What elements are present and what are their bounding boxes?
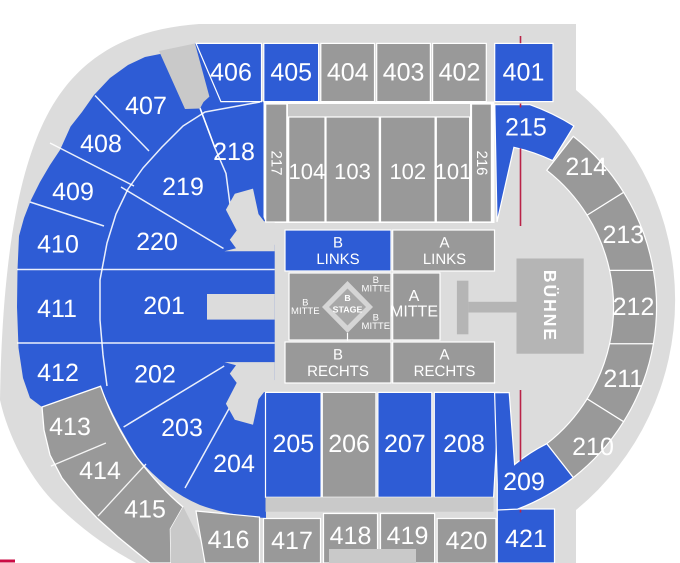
svg-text:205: 205 xyxy=(272,430,314,458)
svg-text:202: 202 xyxy=(134,361,176,389)
svg-text:208: 208 xyxy=(443,430,485,458)
svg-text:203: 203 xyxy=(161,414,203,442)
svg-text:B: B xyxy=(333,235,343,252)
svg-text:412: 412 xyxy=(37,359,79,387)
svg-text:215: 215 xyxy=(505,113,547,141)
svg-text:MITTE: MITTE xyxy=(362,283,391,294)
svg-text:408: 408 xyxy=(80,130,122,158)
svg-text:MITTE: MITTE xyxy=(291,306,320,317)
svg-text:218: 218 xyxy=(213,138,255,166)
svg-text:404: 404 xyxy=(327,59,369,87)
svg-text:421: 421 xyxy=(505,525,547,553)
svg-text:414: 414 xyxy=(79,457,121,485)
svg-text:420: 420 xyxy=(446,527,488,555)
svg-text:201: 201 xyxy=(143,292,185,320)
svg-text:211: 211 xyxy=(603,365,643,393)
svg-text:410: 410 xyxy=(37,231,79,259)
svg-text:415: 415 xyxy=(124,496,166,524)
svg-text:209: 209 xyxy=(503,468,545,496)
svg-text:MITTE: MITTE xyxy=(362,321,391,332)
svg-text:STAGE: STAGE xyxy=(333,304,363,314)
svg-text:B: B xyxy=(344,293,350,303)
svg-text:210: 210 xyxy=(572,433,614,461)
svg-text:216: 216 xyxy=(473,150,490,175)
svg-text:BÜHNE: BÜHNE xyxy=(540,270,560,342)
svg-text:406: 406 xyxy=(210,59,252,87)
svg-text:103: 103 xyxy=(334,159,371,184)
svg-text:LINKS: LINKS xyxy=(423,251,466,268)
svg-text:417: 417 xyxy=(271,527,313,555)
svg-text:407: 407 xyxy=(125,92,167,120)
svg-text:411: 411 xyxy=(37,295,77,323)
svg-text:MITTE: MITTE xyxy=(390,304,438,321)
svg-text:207: 207 xyxy=(384,430,426,458)
svg-text:401: 401 xyxy=(503,59,545,87)
svg-text:403: 403 xyxy=(383,59,425,87)
svg-text:402: 402 xyxy=(439,59,481,87)
svg-text:102: 102 xyxy=(389,159,426,184)
svg-text:RECHTS: RECHTS xyxy=(307,363,369,380)
svg-text:B: B xyxy=(333,347,343,364)
svg-text:220: 220 xyxy=(136,228,178,256)
svg-text:214: 214 xyxy=(565,153,607,181)
svg-text:418: 418 xyxy=(330,522,372,550)
svg-text:217: 217 xyxy=(268,150,285,175)
svg-text:416: 416 xyxy=(208,526,250,554)
svg-text:405: 405 xyxy=(270,59,312,87)
svg-text:413: 413 xyxy=(49,413,91,441)
svg-text:206: 206 xyxy=(328,430,370,458)
svg-text:419: 419 xyxy=(387,522,429,550)
svg-text:A: A xyxy=(409,288,420,305)
svg-text:409: 409 xyxy=(52,178,94,206)
svg-text:A: A xyxy=(439,235,449,252)
svg-text:204: 204 xyxy=(213,450,255,478)
svg-text:LINKS: LINKS xyxy=(316,251,359,268)
svg-text:219: 219 xyxy=(162,173,204,201)
svg-text:A: A xyxy=(439,347,449,364)
svg-text:212: 212 xyxy=(613,293,655,321)
svg-text:213: 213 xyxy=(602,221,644,249)
svg-text:RECHTS: RECHTS xyxy=(414,363,476,380)
svg-text:104: 104 xyxy=(289,159,326,184)
svg-text:101: 101 xyxy=(435,159,472,184)
